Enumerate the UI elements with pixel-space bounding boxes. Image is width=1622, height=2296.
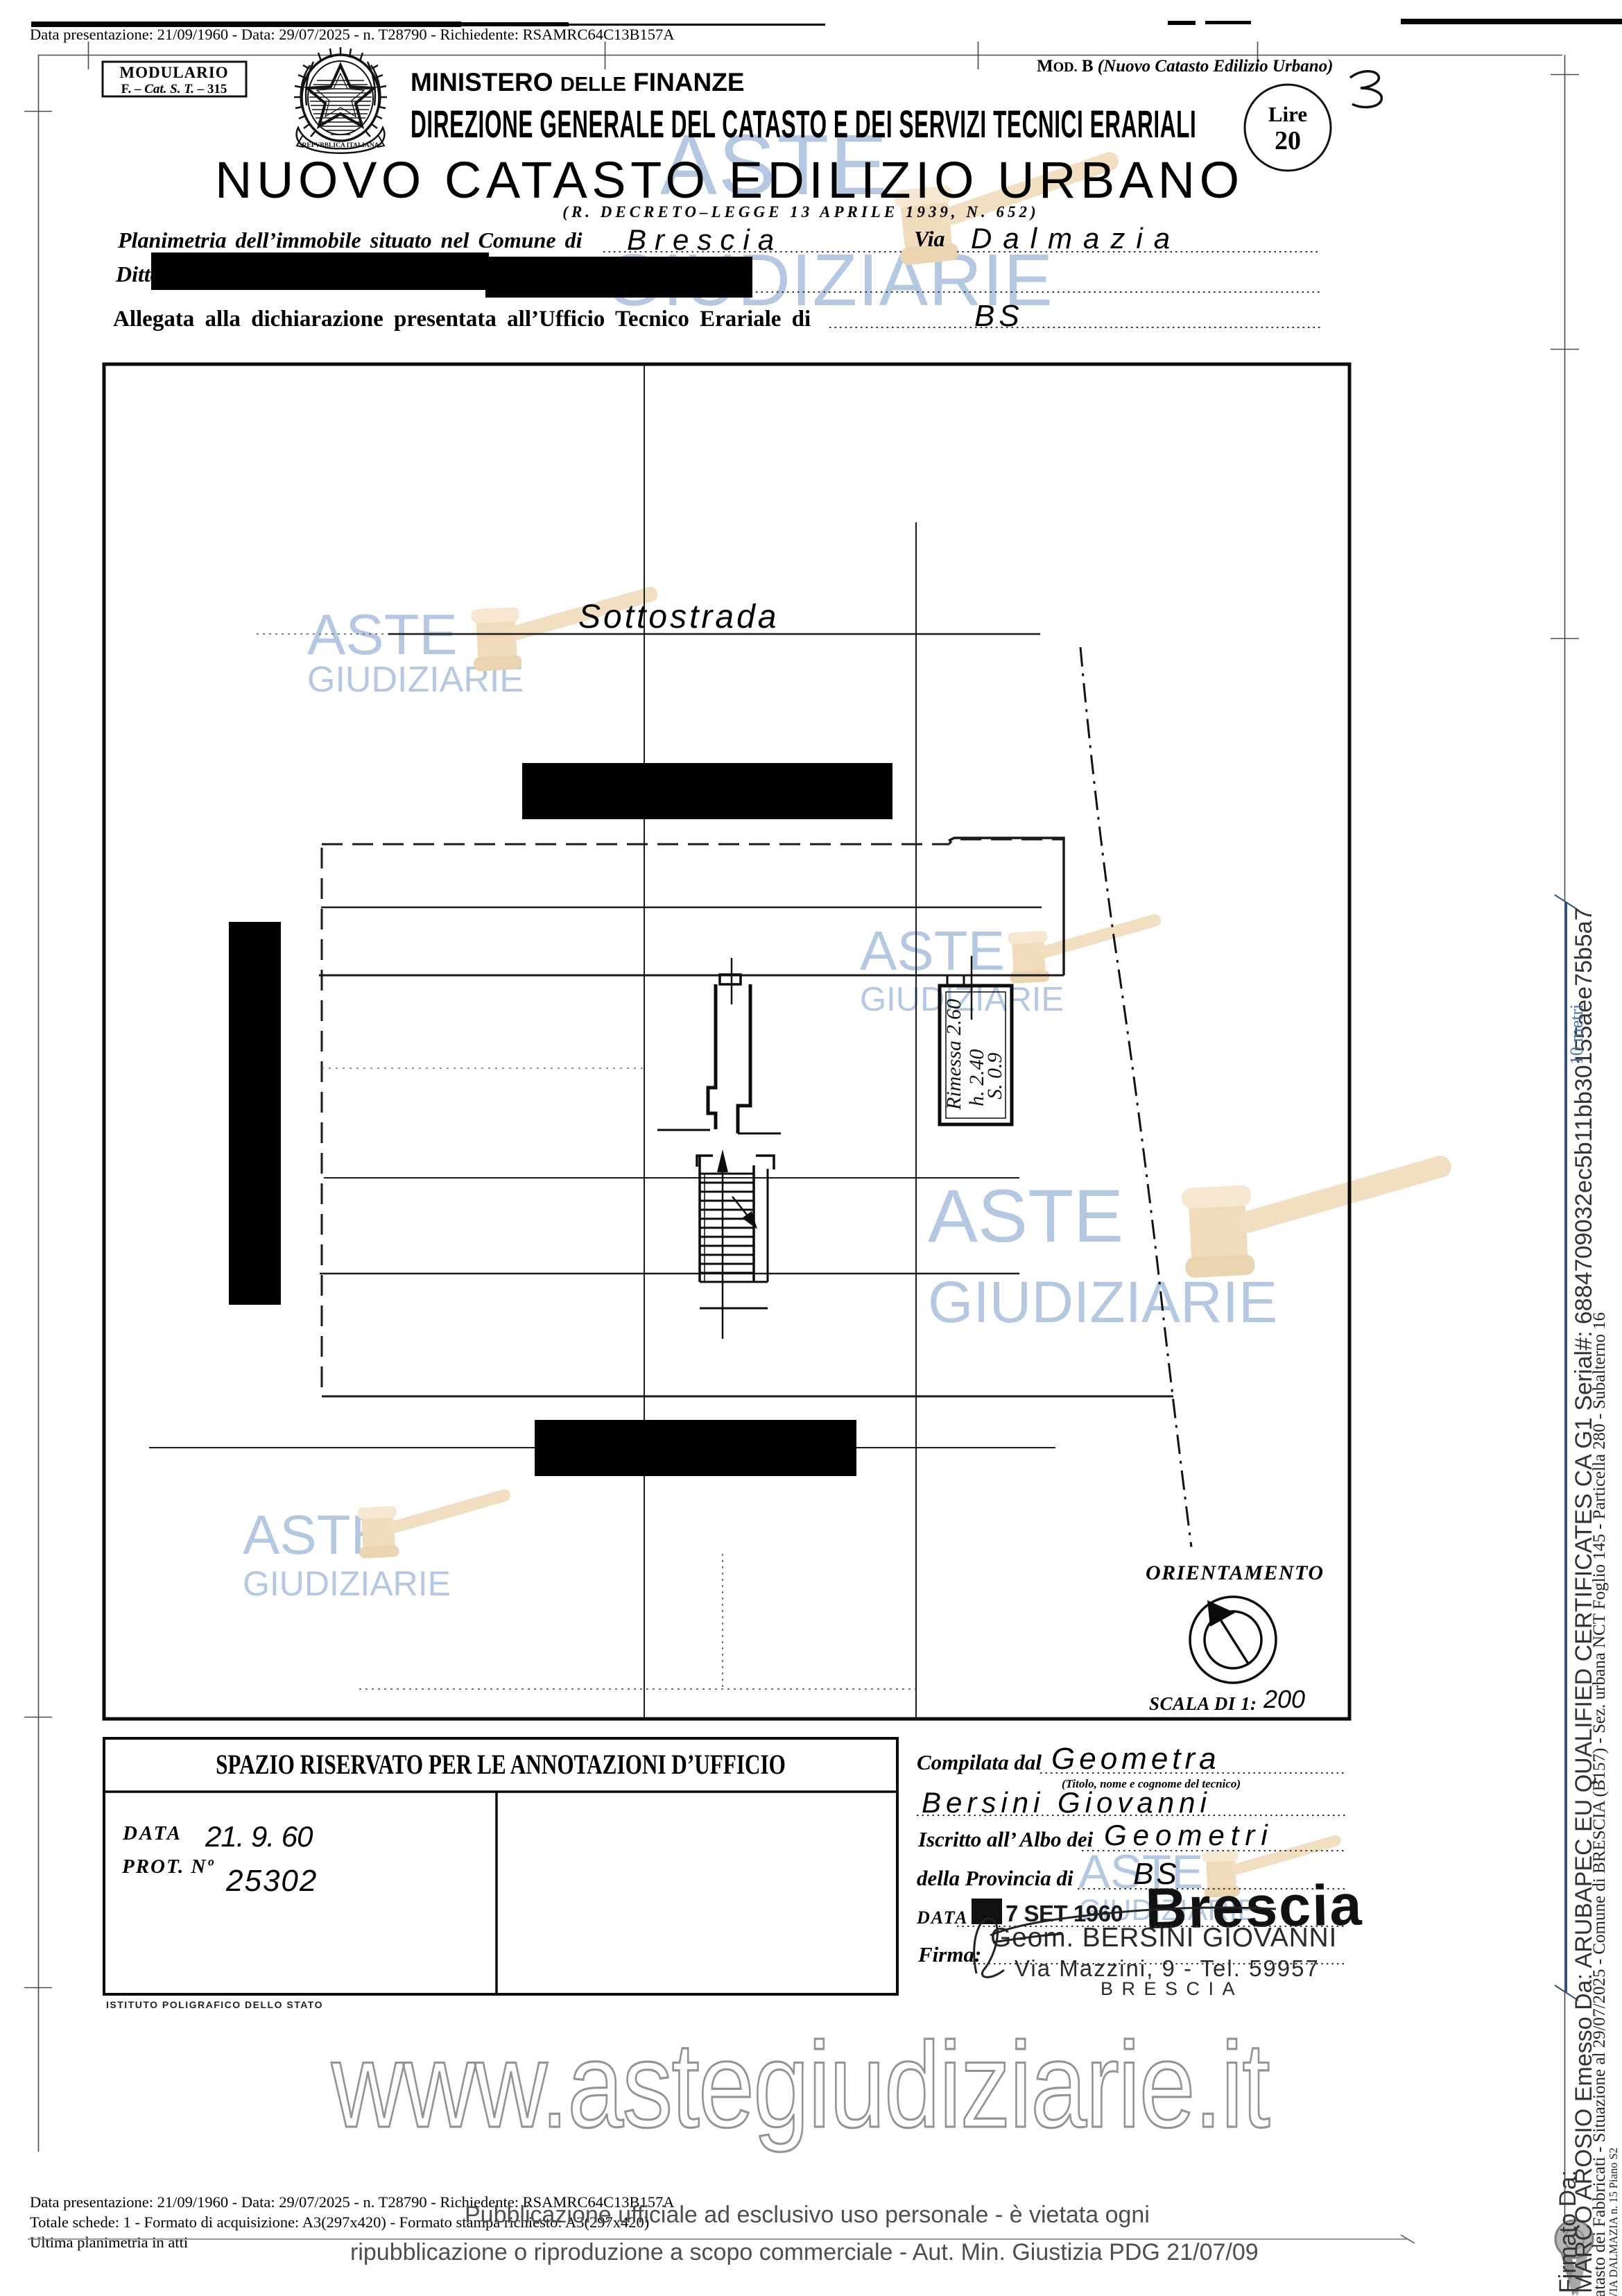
svg-text:PROT. Nº: PROT. Nº xyxy=(121,1856,214,1878)
svg-text:REPVBBLICA ITALIANA: REPVBBLICA ITALIANA xyxy=(302,142,379,149)
svg-text:www.astegiudiziarie.it: www.astegiudiziarie.it xyxy=(331,2017,1270,2153)
svg-text:Dalmazia: Dalmazia xyxy=(971,222,1181,255)
svg-text:MOD. B (Nuovo Catasto Edilizio: MOD. B (Nuovo Catasto Edilizio Urbano) xyxy=(1037,57,1333,76)
svg-text:25302: 25302 xyxy=(225,1864,318,1898)
svg-text:VIA DALMAZIA n. 15 Piano S2: VIA DALMAZIA n. 15 Piano S2 xyxy=(1607,2148,1620,2296)
svg-text:Compilata dal: Compilata dal xyxy=(917,1750,1042,1774)
svg-text:ISTITUTO POLIGRAFICO DELLO: ISTITUTO POLIGRAFICO DELLO STATO xyxy=(106,1999,323,2010)
svg-text:Data presentazione: 21/09/1960: Data presentazione: 21/09/1960 - Data: 2… xyxy=(30,26,675,43)
svg-text:Bersini Giovanni: Bersini Giovanni xyxy=(922,1786,1211,1819)
svg-text:atasto dei Fabbricati - Situaz: atasto dei Fabbricati - Situazione al 29… xyxy=(1590,1312,1609,2296)
svg-text:Via Mazzini, 9 - Tel. 59957: Via Mazzini, 9 - Tel. 59957 xyxy=(1015,1955,1320,1981)
svg-text:21. 9. 60: 21. 9. 60 xyxy=(205,1820,313,1853)
svg-text:MINISTERO DELLE FINANZE: MINISTERO DELLE FINANZE xyxy=(411,68,745,96)
svg-text:F. – Cat. S. T. – 315: F. – Cat. S. T. – 315 xyxy=(121,82,227,96)
svg-text:Firma:: Firma: xyxy=(917,1942,981,1967)
svg-text:Geometra: Geometra xyxy=(1051,1742,1220,1776)
svg-text:Brescia: Brescia xyxy=(627,223,782,256)
svg-text:ripubblicazione o riproduzione: ripubblicazione o riproduzione a scopo c… xyxy=(350,2239,1259,2265)
svg-text:10 metri: 10 metri xyxy=(1567,1004,1587,1065)
svg-text:SCALA DI 1:: SCALA DI 1: xyxy=(1149,1693,1257,1714)
svg-text:Lire: Lire xyxy=(1268,102,1307,126)
svg-text:DATA: DATA xyxy=(916,1908,968,1928)
svg-text:SPAZIO RISERVATO PER LE ANNOTA: SPAZIO RISERVATO PER LE ANNOTAZIONI D’UF… xyxy=(216,1749,786,1780)
svg-text:Geom. BERSINI GIOVANNI: Geom. BERSINI GIOVANNI xyxy=(990,1923,1337,1953)
svg-text:NUOVO CATASTO EDILIZIO URBA: NUOVO CATASTO EDILIZIO URBANO xyxy=(215,151,1244,209)
svg-text:DIREZIONE GENERALE DEL CATASTO: DIREZIONE GENERALE DEL CATASTO E DEI SER… xyxy=(411,102,1196,146)
svg-text:Iscritto all’ Albo dei: Iscritto all’ Albo dei xyxy=(917,1827,1094,1851)
svg-text:MODULARIO: MODULARIO xyxy=(119,64,228,81)
svg-text:Ultima planimetria in atti: Ultima planimetria in atti xyxy=(30,2234,188,2251)
svg-text:Pubblicazione ufficiale ad esc: Pubblicazione ufficiale ad esclusivo uso… xyxy=(465,2202,1150,2228)
svg-text:DATA: DATA xyxy=(122,1822,182,1844)
svg-text:Via: Via xyxy=(914,226,944,251)
svg-text:Sottostrada: Sottostrada xyxy=(578,599,779,635)
svg-text:200: 200 xyxy=(1263,1685,1305,1713)
svg-text:BRESCIA: BRESCIA xyxy=(1101,1978,1243,1999)
svg-text:Rimessa 2.60: Rimessa 2.60 xyxy=(942,999,965,1111)
svg-text:S. 0.9: S. 0.9 xyxy=(983,1053,1006,1100)
svg-text:ORIENTAMENTO: ORIENTAMENTO xyxy=(1146,1561,1325,1584)
svg-text:Geometri: Geometri xyxy=(1104,1819,1274,1851)
svg-text:Allegata alla dichiarazione: Allegata alla dichiarazione presentata a… xyxy=(113,307,811,332)
svg-text:(R. DECRETO–LEGGE 13 APRILE 19: (R. DECRETO–LEGGE 13 APRILE 1939, N. 652… xyxy=(562,203,1039,221)
svg-text:della Provincia di: della Provincia di xyxy=(917,1866,1073,1890)
svg-text:20: 20 xyxy=(1275,126,1301,155)
svg-text:Planimetria dell’immobile si: Planimetria dell’immobile situato nel Co… xyxy=(117,228,583,252)
